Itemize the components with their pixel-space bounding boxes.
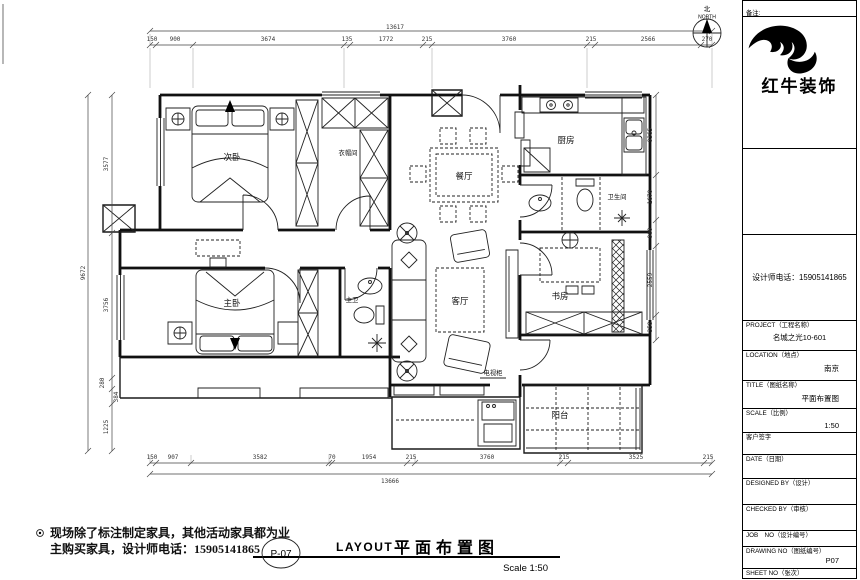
room-label-cloakroom: 衣帽间 <box>339 148 358 157</box>
svg-text:280: 280 <box>99 377 106 388</box>
bedroom2-furniture <box>166 100 318 226</box>
svg-text:1772: 1772 <box>379 36 394 43</box>
sheet-no-row: SHEET NO（张次） <box>743 569 856 580</box>
sign-row: 客户签字 <box>743 433 856 455</box>
scale-value: 1:50 <box>746 421 853 430</box>
note-line1: 现场除了标注制定家具，其他活动家具都为业 <box>50 525 290 540</box>
svg-text:215: 215 <box>559 454 570 461</box>
title-label: TITLE（图纸名称） <box>746 382 853 390</box>
drawing-title: P-07 LAYOUT 平面布置图 Scale 1:50 <box>253 538 560 574</box>
drawing-no-value: P07 <box>746 556 853 565</box>
room-label-bedroom2: 次卧 <box>223 152 241 162</box>
dim-top-total: 13617 <box>386 24 404 31</box>
svg-text:215: 215 <box>586 36 597 43</box>
hall-dresser <box>196 240 240 267</box>
room-label-dining: 餐厅 <box>455 171 473 181</box>
svg-text:907: 907 <box>168 454 179 461</box>
svg-text:3674: 3674 <box>261 36 276 43</box>
room-label-bathroom: 卫生间 <box>608 192 627 201</box>
title-row: TITLE（图纸名称） 平面布置图 <box>743 381 856 409</box>
dimensions-top: 13617 150 900 3674 135 1772 215 3760 215… <box>147 24 715 88</box>
svg-text:1954: 1954 <box>362 454 377 461</box>
sign-label: 客户签字 <box>746 434 853 442</box>
designer-phone: 设计师电话：15905141865 <box>752 272 846 283</box>
designed-row: DESIGNED BY（设计） <box>743 479 856 505</box>
svg-text:2559: 2559 <box>647 272 654 287</box>
date-label: DATE（日期） <box>746 456 853 464</box>
checked-row: CHECKED BY（审核） <box>743 505 856 531</box>
room-label-kitchen: 厨房 <box>557 135 574 145</box>
room-label-study: 书房 <box>551 291 568 301</box>
dimensions-bottom: 13666 150 907 3582 70 1954 215 3760 215 … <box>147 454 715 485</box>
room-label-master-bath: 主卫 <box>346 295 359 304</box>
svg-text:215: 215 <box>703 454 714 461</box>
svg-text:3760: 3760 <box>502 36 517 43</box>
svg-text:9365: 9365 <box>647 127 654 142</box>
svg-text:215: 215 <box>422 36 433 43</box>
svg-text:900: 900 <box>170 36 181 43</box>
svg-text:150: 150 <box>147 454 158 461</box>
svg-text:3582: 3582 <box>253 454 268 461</box>
kitchen-fixtures <box>522 97 646 175</box>
room-label-balcony: 阳台 <box>551 410 568 420</box>
job-row: JOB NO（设计编号） <box>743 531 856 547</box>
svg-text:3577: 3577 <box>103 156 110 171</box>
svg-text:358: 358 <box>647 321 654 332</box>
svg-text:1225: 1225 <box>103 419 110 434</box>
drawing-no-row: DRAWING NO（图纸编号） P07 <box>743 547 856 569</box>
dimensions-left: 9672 3577 3756 280 384 1225 <box>80 92 120 454</box>
svg-text:3756: 3756 <box>103 297 110 312</box>
blank-row <box>743 149 856 235</box>
svg-text:3525: 3525 <box>629 454 644 461</box>
master-furniture <box>168 270 318 356</box>
bottom-note: 现场除了标注制定家具，其他活动家具都为业 主购买家具，设计师电话：1590514… <box>37 525 290 556</box>
cloakroom-wardrobes <box>322 98 388 226</box>
laundry-balcony <box>392 397 520 449</box>
sheet-no-label: SHEET NO（张次） <box>746 570 853 578</box>
location-label: LOCATION（地点） <box>746 352 853 360</box>
brand-row: 红牛装饰 <box>743 17 856 149</box>
brand-name: 红牛装饰 <box>762 72 838 97</box>
location-value: 南京 <box>746 363 853 374</box>
study-furniture <box>526 232 642 334</box>
svg-text:384: 384 <box>113 391 120 402</box>
svg-text:70: 70 <box>328 454 336 461</box>
scale-row: SCALE（比例） 1:50 <box>743 409 856 433</box>
compass-north-char: 北 <box>704 5 711 13</box>
designed-by-label: DESIGNED BY（设计） <box>746 480 853 488</box>
project-row: PROJECT（工程名称） 名城之光10-601 <box>743 321 856 351</box>
project-label: PROJECT（工程名称） <box>746 322 853 330</box>
north-compass-icon: 北 NORTH <box>693 5 721 47</box>
dim-left-total: 9672 <box>80 265 87 280</box>
svg-text:150: 150 <box>147 36 158 43</box>
remark-row: 备注: <box>743 1 856 17</box>
drawing-no-label: DRAWING NO（图纸编号） <box>746 548 853 556</box>
remark-label: 备注: <box>746 10 760 17</box>
dim-bottom-total: 13666 <box>381 478 399 485</box>
svg-text:900: 900 <box>647 227 654 238</box>
title-value: 平面布置图 <box>746 393 853 404</box>
note-line2: 主购买家具，设计师电话：15905141865 <box>50 541 260 556</box>
scale-label: SCALE（比例） <box>746 410 853 418</box>
drawing-sheet: 次卧 衣帽间 厨房 餐厅 卫生间 书房 客厅 主卧 主卫 阳台 电视柜 1361… <box>0 0 860 580</box>
floor-plan-canvas: 次卧 衣帽间 厨房 餐厅 卫生间 书房 客厅 主卧 主卫 阳台 电视柜 1361… <box>0 0 742 580</box>
room-label-master: 主卧 <box>223 298 241 308</box>
checked-by-label: CHECKED BY（审核） <box>746 506 853 514</box>
phone-row: 设计师电话：15905141865 <box>743 235 856 321</box>
title-chinese: 平面布置图 <box>394 538 499 557</box>
svg-text:3760: 3760 <box>480 454 495 461</box>
label-tv-cabinet: 电视柜 <box>484 368 503 377</box>
date-row: DATE（日期） <box>743 455 856 479</box>
walls <box>120 85 650 397</box>
job-no-label: JOB NO（设计编号） <box>746 532 853 540</box>
svg-text:2566: 2566 <box>641 36 656 43</box>
svg-text:1670: 1670 <box>647 189 654 204</box>
sheet-number-circle: P-07 <box>270 549 292 560</box>
svg-text:215: 215 <box>406 454 417 461</box>
svg-text:135: 135 <box>342 36 353 43</box>
location-row: LOCATION（地点） 南京 <box>743 351 856 381</box>
bay-flower-boxes <box>120 357 484 398</box>
tiled-balcony <box>524 385 642 453</box>
master-bath-fixtures <box>354 278 386 352</box>
project-value: 名城之光10-601 <box>746 332 853 343</box>
title-english: LAYOUT <box>336 540 393 554</box>
scale-note: Scale 1:50 <box>503 563 548 574</box>
room-label-living: 客厅 <box>451 296 469 306</box>
brand-bull-logo-icon <box>743 17 827 75</box>
title-block: 备注: 红牛装饰 设计师电话：15905141865 PROJECT（工程名称）… <box>742 0 857 579</box>
